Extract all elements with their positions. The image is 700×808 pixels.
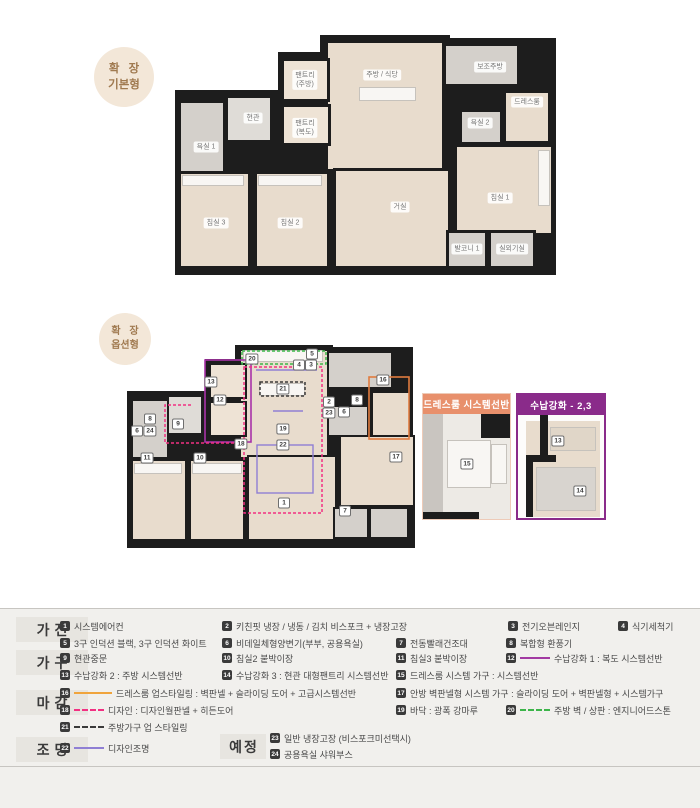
item-text: 드레스룸 업스타일링 : 벽판넬 + 슬라이딩 도어 + 고급시스템선반 — [116, 687, 356, 700]
item-number-badge: 18 — [60, 705, 70, 715]
item-number-badge: 10 — [222, 653, 232, 663]
item-number-badge: 12 — [506, 653, 516, 663]
wall-segment — [540, 415, 548, 455]
item-number-badge: 17 — [396, 688, 406, 698]
floorplan-basic: 욕실 1 현관 팬트리 (주방) 팬트리 (복도) 주방 / 식당 보조주방 욕… — [170, 30, 560, 275]
room-label-bathroom2: 욕실 2 — [468, 117, 493, 128]
item-text: 주방가구 업 스타일링 — [108, 721, 188, 734]
legend-item-3: 3 전기오븐레인지 — [508, 620, 580, 632]
item-text: 디자인조명 — [108, 742, 149, 755]
item-number-badge: 7 — [396, 638, 406, 648]
item-text: 시스템에어컨 — [74, 620, 124, 633]
item-text: 안방 벽판넬형 시스템 가구 : 슬라이딩 도어 + 벽판넬형 + 시스템가구 — [410, 687, 663, 700]
legend-item-5: 5 3구 인덕션 블랙, 3구 인덕션 화이트 — [60, 637, 207, 649]
room-living — [333, 168, 451, 269]
swatch-dark-dashed-line — [74, 726, 104, 728]
closet — [182, 175, 244, 186]
marker-2: 2 — [323, 397, 335, 408]
swatch-green-dashed-line — [520, 709, 550, 711]
legend-item-1: 1 시스템에어컨 — [60, 620, 124, 632]
wall-segment — [481, 414, 510, 438]
item-number-badge: 19 — [396, 705, 406, 715]
item-text: 키친핏 냉장 / 냉동 / 김치 비스포크 + 냉장고장 — [236, 620, 407, 633]
marker-6: 6 — [338, 407, 350, 418]
legend-item-4: 4 식기세척기 — [618, 620, 673, 632]
room-label-bedroom3: 침실 3 — [204, 217, 229, 228]
item-text: 비데일체형양변기(부부, 공용욕실) — [236, 637, 363, 650]
item-number-badge: 1 — [60, 621, 70, 631]
swatch-pink-dashed-line — [74, 709, 104, 711]
marker-22: 22 — [276, 440, 289, 451]
detail-box-dressroom-shelf: 드레스룸 시스템선반 15 — [422, 393, 511, 520]
legend-item-16: 16 드레스룸 업스타일링 : 벽판넬 + 슬라이딩 도어 + 고급시스템선반 — [60, 687, 356, 699]
badge-basic-line2: 기본형 — [108, 77, 140, 93]
detail-box-storage-title: 수납강화 - 2,3 — [518, 395, 604, 415]
item-text: 드레스룸 시스템 가구 : 시스템선반 — [410, 669, 538, 682]
item-number-badge: 13 — [60, 670, 70, 680]
room-label-pantry-hall: 팬트리 (복도) — [292, 118, 317, 138]
item-text: 전기오븐레인지 — [522, 620, 580, 633]
marker-8-left: 8 — [144, 414, 156, 425]
legend-item-14: 14 수납강화 3 : 현관 대형팬트리 시스템선반 — [222, 669, 389, 681]
item-number-badge: 6 — [222, 638, 232, 648]
badge-basic-line1: 확 장 — [106, 61, 142, 77]
item-text: 주방 벽 / 상판 : 엔지니어드스톤 — [554, 704, 671, 717]
legend-item-17: 17 안방 벽판넬형 시스템 가구 : 슬라이딩 도어 + 벽판넬형 + 시스템… — [396, 687, 663, 699]
annotation-lighting-violet — [257, 445, 313, 493]
marker-1: 1 — [278, 498, 290, 509]
item-number-badge: 3 — [508, 621, 518, 631]
swatch-orange-solid-line — [74, 692, 112, 694]
legend-item-19: 19 바닥 : 광폭 강마루 — [396, 704, 478, 716]
legend-item-24: 24 공용욕실 샤워부스 — [270, 748, 353, 760]
detail-box-dressroom-plan: 15 — [423, 414, 510, 519]
swatch-violet-solid-line — [74, 747, 104, 749]
marker-17: 17 — [389, 452, 402, 463]
room-label-bathroom1: 욕실 1 — [194, 141, 219, 152]
item-number-badge: 21 — [60, 722, 70, 732]
wall-segment — [423, 512, 479, 519]
marker-9: 9 — [172, 419, 184, 430]
item-number-badge: 16 — [60, 688, 70, 698]
legend-item-7: 7 전동빨래건조대 — [396, 637, 468, 649]
floorplan-page: 확 장 기본형 욕실 1 현관 팬트리 (주방) 팬트리 (복도) — [0, 0, 700, 808]
closet — [538, 150, 550, 206]
item-number-badge: 8 — [506, 638, 516, 648]
room-kitchen-dining — [325, 40, 445, 172]
item-text: 수납강화 1 : 복도 시스템선반 — [554, 652, 663, 665]
swatch-purple-solid-line — [520, 657, 550, 659]
marker-24: 24 — [143, 426, 156, 437]
marker-3: 3 — [305, 360, 317, 371]
marker-23: 23 — [322, 408, 335, 419]
marker-14: 14 — [573, 486, 586, 497]
legend-item-22: 22 디자인조명 — [60, 742, 149, 754]
room-label-aux-kitchen: 보조주방 — [474, 61, 506, 72]
wall-segment — [526, 462, 533, 517]
item-text: 현관중문 — [74, 652, 107, 665]
item-number-badge: 14 — [222, 670, 232, 680]
item-text: 침실3 붙박이장 — [410, 652, 467, 665]
item-text: 침실2 붙박이장 — [236, 652, 293, 665]
room-label-outdoor-unit: 실외기실 — [496, 243, 528, 254]
item-text: 3구 인덕션 블랙, 3구 인덕션 화이트 — [74, 637, 207, 650]
option-plan-annotations — [125, 343, 417, 548]
legend-item-23: 23 일반 냉장고장 (비스포크미선택시) — [270, 732, 411, 744]
legend-item-20: 20 주방 벽 / 상판 : 엔지니어드스톤 — [506, 704, 671, 716]
legend-item-10: 10 침실2 붙박이장 — [222, 652, 293, 664]
wall-segment — [526, 455, 556, 462]
room-label-bedroom2: 침실 2 — [278, 217, 303, 228]
legend-item-11: 11 침실3 붙박이장 — [396, 652, 467, 664]
item-number-badge: 4 — [618, 621, 628, 631]
item-number-badge: 5 — [60, 638, 70, 648]
closet — [258, 175, 322, 186]
marker-11: 11 — [141, 453, 154, 464]
marker-15: 15 — [460, 459, 473, 470]
detail-box-storage-plan: 13 14 — [518, 415, 604, 518]
marker-19: 19 — [276, 424, 289, 435]
divider — [0, 766, 700, 767]
legend-item-2: 2 키친핏 냉장 / 냉동 / 김치 비스포크 + 냉장고장 — [222, 620, 407, 632]
marker-18: 18 — [234, 439, 247, 450]
marker-8: 8 — [351, 395, 363, 406]
legend-item-8: 8 복합형 환풍기 — [506, 637, 572, 649]
legend-item-13: 13 수납강화 2 : 주방 시스템선반 — [60, 669, 183, 681]
marker-12: 12 — [213, 395, 226, 406]
room-label-bedroom1: 침실 1 — [488, 192, 513, 203]
pantry-shelf — [536, 467, 596, 511]
marker-6-left: 6 — [131, 426, 143, 437]
item-number-badge: 20 — [506, 705, 516, 715]
detail-box-storage-23: 수납강화 - 2,3 13 14 — [516, 393, 606, 520]
item-number-badge: 2 — [222, 621, 232, 631]
floorplan-option: 20 5 4 3 13 12 21 2 23 6 8 16 9 8 6 24 1… — [125, 343, 417, 548]
badge-option-line1: 확 장 — [108, 325, 141, 339]
legend-item-12: 12 수납강화 1 : 복도 시스템선반 — [506, 652, 663, 664]
item-text: 일반 냉장고장 (비스포크미선택시) — [284, 732, 411, 745]
marker-13: 13 — [204, 377, 217, 388]
item-number-badge: 23 — [270, 733, 280, 743]
room-bathroom1 — [178, 100, 226, 175]
item-text: 공용욕실 샤워부스 — [284, 748, 353, 761]
item-text: 디자인 : 디자인월판넬 + 히든도어 — [108, 704, 233, 717]
item-number-badge: 15 — [396, 670, 406, 680]
item-number-badge: 11 — [396, 653, 406, 663]
room-label-pantry-kitchen: 팬트리 (주방) — [292, 70, 317, 90]
marker-10: 10 — [193, 453, 206, 464]
legend-item-6: 6 비데일체형양변기(부부, 공용욕실) — [222, 637, 363, 649]
legend-item-21: 21 주방가구 업 스타일링 — [60, 721, 188, 733]
room-label-kitchen-dining: 주방 / 식당 — [363, 69, 401, 80]
room-label-entrance: 현관 — [244, 112, 263, 123]
item-number-badge: 22 — [60, 743, 70, 753]
marker-13: 13 — [551, 436, 564, 447]
annotation-dressroom-orange — [369, 377, 409, 439]
room-label-dressroom: 드레스룸 — [511, 96, 543, 107]
marker-5: 5 — [306, 349, 318, 360]
room-label-living: 거실 — [391, 201, 410, 212]
legend-item-9: 9 현관중문 — [60, 652, 107, 664]
item-text: 수납강화 3 : 현관 대형팬트리 시스템선반 — [236, 669, 389, 682]
item-text: 복합형 환풍기 — [520, 637, 572, 650]
marker-16: 16 — [376, 375, 389, 386]
detail-box-dressroom-title: 드레스룸 시스템선반 — [423, 394, 510, 414]
item-number-badge: 24 — [270, 749, 280, 759]
item-text: 바닥 : 광폭 강마루 — [410, 704, 478, 717]
legend-category-planned: 예정 — [220, 734, 266, 759]
marker-20: 20 — [245, 354, 258, 365]
kitchen-island — [359, 87, 416, 101]
marker-7: 7 — [339, 506, 351, 517]
item-text: 수납강화 2 : 주방 시스템선반 — [74, 669, 183, 682]
item-text: 전동빨래건조대 — [410, 637, 468, 650]
badge-expansion-basic: 확 장 기본형 — [94, 47, 154, 107]
item-number-badge: 9 — [60, 653, 70, 663]
item-text: 식기세척기 — [632, 620, 673, 633]
tile-strip — [423, 414, 443, 519]
divider — [0, 608, 700, 609]
legend-item-15: 15 드레스룸 시스템 가구 : 시스템선반 — [396, 669, 538, 681]
room-label-balcony1: 발코니 1 — [451, 243, 482, 254]
marker-4: 4 — [293, 360, 305, 371]
system-shelf — [491, 444, 507, 484]
legend-item-18: 18 디자인 : 디자인월판넬 + 히든도어 — [60, 704, 233, 716]
marker-21: 21 — [276, 384, 289, 395]
